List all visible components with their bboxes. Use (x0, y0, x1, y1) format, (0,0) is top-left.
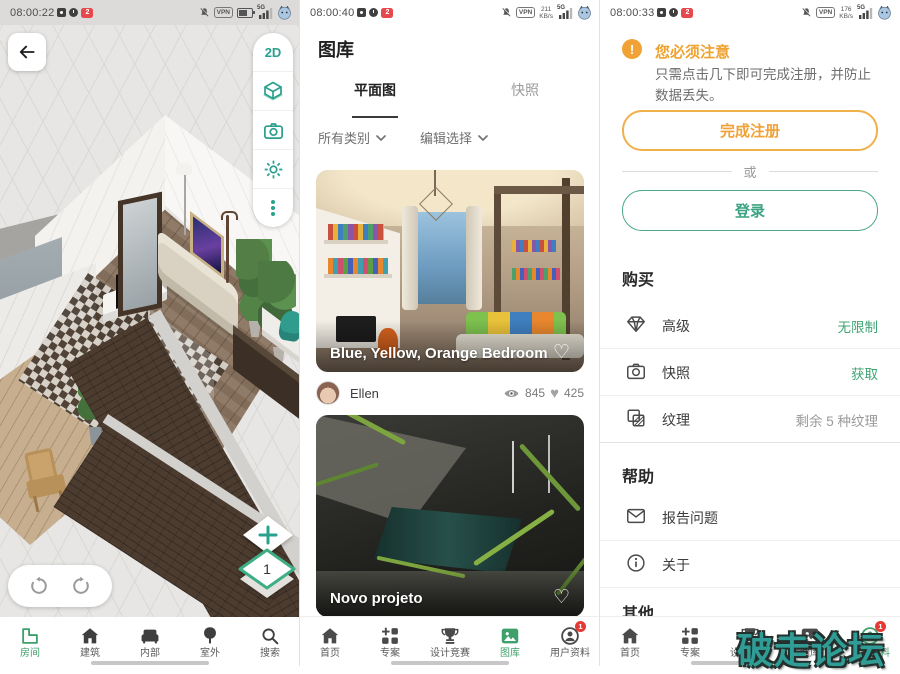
projects-plus-grid-icon (679, 625, 701, 647)
clock-text: 08:00:22 (10, 7, 54, 19)
3d-scene-viewport[interactable]: 2D 1 (0, 25, 300, 617)
nav-item-gallery[interactable]: 图库 (480, 617, 540, 666)
complete-registration-button[interactable]: 完成注册 (622, 110, 878, 151)
nav-item-interior[interactable]: 内部 (120, 617, 180, 666)
active-tab-underline (352, 116, 398, 119)
sofa-icon (139, 625, 161, 647)
view-3d-button[interactable] (253, 72, 293, 111)
notification-app-icon (357, 8, 366, 17)
nav-item-home[interactable]: 首页 (300, 617, 360, 666)
nav-item-search[interactable]: 搜索 (240, 617, 300, 666)
vpn-badge: VPN (816, 7, 835, 18)
mode-2d-button[interactable]: 2D (253, 33, 293, 72)
room-icon (19, 625, 41, 647)
back-arrow-icon (17, 42, 37, 62)
right-shelf-books-2 (512, 268, 560, 280)
diamond-icon (625, 313, 647, 335)
nav-item-contest[interactable]: 设计竞赛 (420, 617, 480, 666)
section-title-help: 帮助 (622, 463, 654, 487)
vpn-badge: VPN (214, 7, 233, 18)
redo-button[interactable] (71, 576, 91, 596)
notification-badge: 2 (381, 8, 393, 18)
camera-icon (262, 119, 285, 142)
login-button[interactable]: 登录 (622, 190, 878, 231)
signal-icon: 5G (557, 6, 573, 19)
notification-badge: 2 (81, 8, 93, 18)
author-name: Ellen (350, 386, 379, 401)
undo-button[interactable] (29, 576, 49, 596)
editors-choice-dropdown[interactable]: 编辑选择 (420, 128, 488, 147)
divider-line (622, 171, 732, 172)
notice-title: 您必须注意 (655, 41, 730, 62)
likes-count: 425 (564, 386, 584, 400)
house-icon (619, 625, 641, 647)
books-row-1 (328, 224, 384, 240)
palm-leaf-4 (519, 443, 582, 512)
shower-pole-1 (512, 441, 514, 493)
notification-badge: 2 (681, 8, 693, 18)
views-count: 845 (525, 386, 545, 400)
floor-level-number: 1 (263, 561, 271, 577)
bed-canopy (494, 186, 584, 194)
row-report-problem[interactable]: 报告问题 (600, 493, 900, 541)
cube-3d-icon (260, 79, 286, 104)
section-title-purchase: 购买 (622, 266, 654, 290)
pool-wall (316, 415, 466, 525)
more-options-button[interactable] (253, 189, 293, 227)
floor-level-control[interactable]: 1 (237, 546, 297, 604)
card-meta-row: Ellen 845 ♥ 425 (316, 378, 584, 408)
search-icon (259, 625, 281, 647)
battery-icon (237, 8, 253, 18)
card-title-overlay: Blue, Yellow, Orange Bedroom ♡ (316, 320, 584, 372)
mute-icon (501, 7, 512, 18)
undo-redo-pill (8, 565, 112, 607)
card-title: Blue, Yellow, Orange Bedroom (330, 345, 548, 362)
gear-icon (262, 158, 285, 181)
back-button[interactable] (8, 33, 46, 71)
chevron-down-icon (478, 135, 488, 141)
favorite-heart-icon[interactable]: ♡ (553, 588, 570, 607)
settings-button[interactable] (253, 150, 293, 189)
mascot-status-icon (877, 5, 892, 20)
gallery-filters: 所有类别 编辑选择 (318, 128, 488, 147)
status-bar: 08:00:22 2 VPN 5G (0, 0, 300, 25)
page-title: 图库 (318, 36, 354, 62)
window (412, 212, 470, 304)
tree-icon (199, 625, 221, 647)
trophy-icon (439, 625, 461, 647)
nav-item-building[interactable]: 建筑 (60, 617, 120, 666)
gallery-bottom-nav: 首页 专案 设计竞赛 图库 1 用户资料 (300, 616, 600, 666)
views-eye-icon (503, 387, 520, 400)
alarm-icon (669, 8, 678, 17)
profile-badge: 1 (575, 621, 586, 632)
nav-item-profile[interactable]: 1 用户资料 (540, 617, 600, 666)
tab-snapshots[interactable]: 快照 (450, 80, 600, 110)
mute-icon (801, 7, 812, 18)
projects-plus-grid-icon (379, 625, 401, 647)
divider-line (769, 171, 879, 172)
floor-lamp (184, 173, 186, 235)
panel-separator (299, 0, 300, 666)
mascot-status-icon (577, 5, 592, 20)
home-indicator[interactable] (91, 661, 209, 665)
home-indicator[interactable] (391, 661, 509, 665)
alarm-icon (69, 8, 78, 17)
warning-icon: ! (622, 39, 642, 59)
mirror (118, 192, 162, 317)
mascot-status-icon (277, 5, 292, 20)
coat-rack (226, 215, 229, 283)
snapshot-button[interactable] (253, 111, 293, 150)
nav-item-room[interactable]: 房间 (0, 617, 60, 666)
network-speed: 176KB/s (839, 6, 853, 20)
books-row-2 (328, 258, 388, 274)
right-shelf-books (512, 240, 556, 252)
gallery-tabs: 平面图 快照 (300, 80, 600, 110)
status-bar: 08:00:33 2 VPN 176KB/s 5G (600, 0, 900, 25)
likes-heart-icon: ♥ (550, 386, 559, 401)
house-icon (319, 625, 341, 647)
gallery-panel: 08:00:40 2 VPN 211KB/s 5G 图库 平面图 快照 所有类别 (300, 0, 600, 666)
curtain-left (402, 206, 418, 310)
camera-icon (625, 360, 647, 382)
signal-icon: 5G (257, 6, 273, 19)
mute-icon (199, 7, 210, 18)
shelf (324, 274, 392, 278)
notification-app-icon (57, 8, 66, 17)
network-speed: 211KB/s (539, 6, 553, 20)
nav-item-projects[interactable]: 专案 (360, 617, 420, 666)
gallery-image-icon (499, 625, 521, 647)
row-about[interactable]: 关于 (600, 540, 900, 588)
gallery-card-pool[interactable]: Novo projeto ♡ (316, 415, 584, 617)
signal-icon: 5G (857, 6, 873, 19)
chevron-down-icon (376, 135, 386, 141)
clock-text: 08:00:40 (310, 7, 354, 19)
author-avatar[interactable] (316, 381, 340, 405)
row-snapshots[interactable]: 快照 获取 (600, 348, 900, 396)
panel-separator (599, 0, 600, 666)
mail-icon (625, 505, 647, 527)
info-icon (625, 552, 647, 574)
forum-watermark: 破走论坛 (737, 622, 885, 674)
shower-pole-2 (548, 435, 550, 493)
coat-rack-top (221, 211, 238, 220)
vpn-badge: VPN (516, 7, 535, 18)
row-textures[interactable]: 纹理 剩余 5 种纹理 (600, 395, 900, 443)
nav-item-home[interactable]: 首页 (600, 617, 660, 666)
gallery-card-bedroom[interactable]: Blue, Yellow, Orange Bedroom ♡ (316, 170, 584, 372)
viewer-panel: 08:00:22 2 VPN 5G (0, 0, 300, 666)
nav-item-outdoor[interactable]: 室外 (180, 617, 240, 666)
or-divider: 或 (622, 162, 878, 181)
clock-text: 08:00:33 (610, 7, 654, 19)
profile-panel: 08:00:33 2 VPN 176KB/s 5G ! 您必须注意 只需点击几下… (600, 0, 900, 666)
view-toolbar: 2D (253, 33, 293, 227)
house-icon (79, 625, 101, 647)
card-title-overlay: Novo projeto ♡ (316, 565, 584, 617)
notification-app-icon (657, 8, 666, 17)
textures-icon (625, 407, 647, 429)
curtain-right (466, 206, 482, 310)
alarm-icon (369, 8, 378, 17)
floor-lamp-shade (176, 163, 192, 175)
card-title: Novo projeto (330, 590, 423, 607)
viewer-bottom-nav: 房间 建筑 内部 室外 搜索 (0, 617, 300, 666)
shelf (324, 240, 388, 244)
status-bar: 08:00:40 2 VPN 211KB/s 5G (300, 0, 600, 25)
favorite-heart-icon[interactable]: ♡ (553, 343, 570, 362)
nav-item-projects[interactable]: 专案 (660, 617, 720, 666)
category-filter-dropdown[interactable]: 所有类别 (318, 128, 386, 147)
notice-body: 只需点击几下即可完成注册，并防止数据丢失。 (655, 64, 883, 106)
row-premium[interactable]: 高级 无限制 (600, 301, 900, 349)
tab-floorplans[interactable]: 平面图 (300, 80, 450, 110)
